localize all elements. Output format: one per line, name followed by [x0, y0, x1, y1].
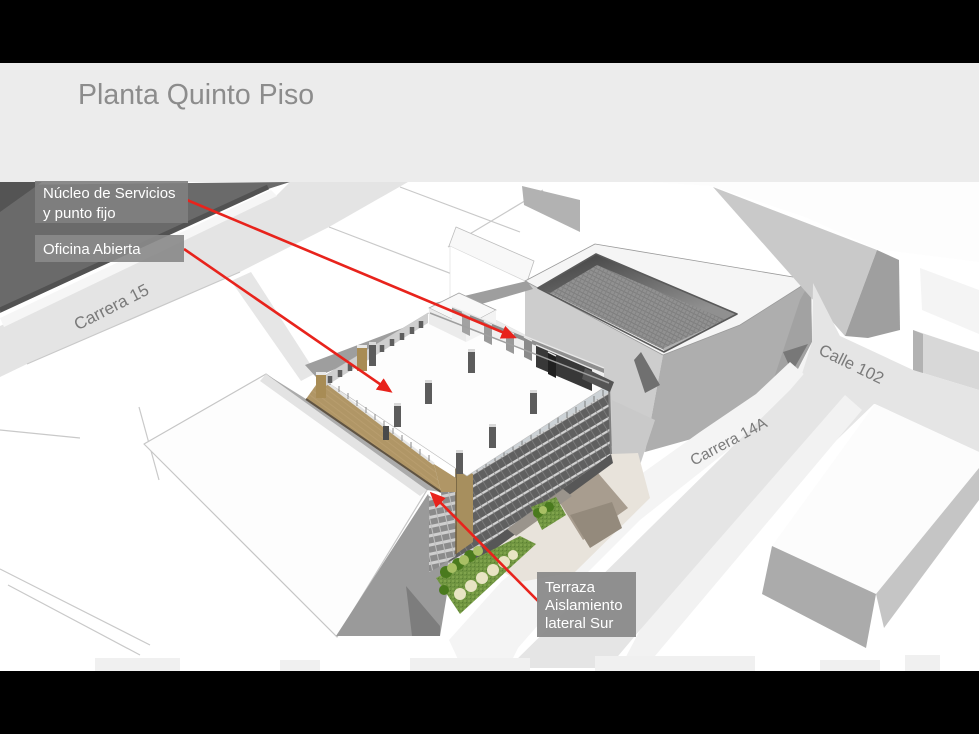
svg-text:y punto fijo: y punto fijo: [43, 205, 116, 222]
svg-text:Oficina Abierta: Oficina Abierta: [43, 241, 141, 258]
svg-text:Aislamiento: Aislamiento: [545, 597, 623, 614]
svg-text:Terraza: Terraza: [545, 579, 596, 596]
svg-text:lateral Sur: lateral Sur: [545, 615, 613, 632]
svg-text:Planta Quinto Piso: Planta Quinto Piso: [78, 79, 314, 111]
svg-text:Núcleo de Servicios: Núcleo de Servicios: [43, 185, 176, 202]
